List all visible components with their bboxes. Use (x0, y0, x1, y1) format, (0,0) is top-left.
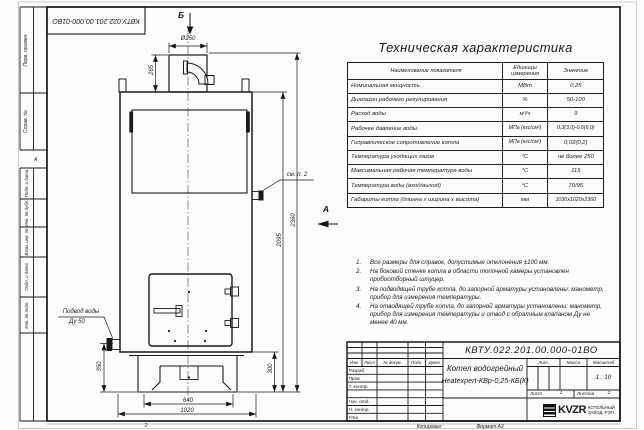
spec-cell: Максимальная рабочая температура воды (348, 165, 503, 179)
spec-cell: Расход воды (348, 108, 503, 122)
note-number: 4. (356, 303, 370, 328)
note-number: 1. (356, 259, 370, 267)
dim-chimney-diameter: Ø250 (166, 35, 210, 44)
spec-cell: °С (503, 151, 548, 165)
spec-cell: °С (503, 165, 548, 179)
note-text: На подводящей трубе котла, до запорной а… (370, 286, 608, 302)
note-text: На боковой стенке котла в области топочн… (370, 268, 608, 284)
note-item: 4. На отводящей трубе котла, до запорной… (356, 303, 608, 328)
boiler-outline (107, 30, 264, 400)
lit-label: Лит. (527, 360, 560, 365)
spec-cell: МПа (кгс/см²) (503, 137, 548, 151)
scale-value: 1 : 10 (587, 368, 620, 388)
kvzr-logo-text: KVZR (558, 404, 586, 416)
sheets-label: Листов (577, 391, 603, 396)
see-note-callout: см. п. 2 (277, 171, 317, 180)
water-inlet-dn-label: Ду 50 (57, 318, 97, 327)
spec-header-name: Наименование показателя (348, 63, 503, 80)
drawing-sheet: КВТУ.022.201.00.000-01ВО Перв. примен. С… (0, 0, 644, 430)
note-item: 1. Все размеры для справок, допустимые о… (356, 259, 608, 267)
role-nach-otd: Нач. отд. (349, 399, 377, 404)
rev-header-dokum: № докум. (377, 360, 408, 365)
note-number: 3. (356, 286, 370, 302)
spec-cell: мм (503, 194, 548, 208)
spec-cell: Рабочее давление воды (348, 122, 503, 136)
title-block-doc-number: КВТУ.022.201.00.000-01ВО (443, 344, 620, 358)
rev-header-list: Лист (362, 360, 377, 365)
margin-label-sprav-no: Справ. № (20, 93, 34, 150)
dim-total-width: 1020 (165, 407, 209, 416)
kvzr-logo-icon (543, 404, 556, 417)
spec-header-value: Значение (548, 63, 604, 80)
dim-inlet-height: 350 (95, 351, 105, 382)
note-item: 3. На подводящей трубе котла, до запорно… (356, 286, 608, 302)
mass-label: Масса (560, 360, 587, 365)
view-b-label: Б (175, 11, 187, 20)
notes-list: 1. Все размеры для справок, допустимые о… (356, 259, 608, 329)
spec-cell: м³/ч (503, 108, 548, 122)
spec-cell: не более 250 (548, 151, 604, 165)
spec-cell: МВт (503, 80, 548, 94)
dim-total-height: 2360 (289, 203, 299, 237)
spec-cell: 0,3(3,0)-0,6(6,0) (548, 122, 604, 136)
margin-label-perv-primen: Перв. примен. (20, 7, 34, 93)
note-text: На отводящей трубе котла, до запорной ар… (370, 303, 608, 328)
water-inlet-label: Подвод воды (57, 308, 105, 317)
spec-cell: Гидравлическое сопротивление котла (348, 137, 503, 151)
scale-label: Масштаб (587, 360, 620, 365)
spec-cell: Температура уходящих газов (348, 151, 503, 165)
spec-cell: МПа (кгс/см²) (503, 122, 548, 136)
company-name-line2: ЗАВОД, РЭП (588, 410, 615, 415)
spec-cell: °С (503, 179, 548, 193)
dim-base-height: 300 (266, 354, 276, 383)
spec-cell: 1030х1020х2360 (548, 194, 604, 208)
spec-table: Наименование показателя Единицы измерени… (347, 62, 604, 208)
spec-cell: Температура воды (вход/выход) (348, 179, 503, 193)
spec-cell: 0,02(0,2) (548, 137, 604, 151)
role-razrab: Разраб. (349, 368, 377, 373)
format-label: Формат А3 (468, 424, 512, 430)
role-utv: Утв. (349, 415, 377, 420)
margin-label-podp-data-1: Подп. и дата (20, 168, 34, 199)
note-text: Все размеры для справок, допустимые откл… (370, 259, 608, 267)
copied-label: Копировал (400, 424, 458, 430)
spec-cell: % (503, 94, 548, 108)
spec-cell: 9 (548, 108, 604, 122)
company-block: KVZR КОТЕЛЬНЫЙ ЗАВОД, РЭП (543, 400, 619, 420)
margin-label-inv-podl: Инв. № подл. (20, 297, 34, 333)
sheet-value: 1 (552, 391, 570, 396)
dim-body-height: 2095 (275, 223, 285, 257)
spec-cell: Номинальная мощность (348, 80, 503, 94)
view-a-label: А (319, 205, 333, 214)
role-t-kontr: Т. контр. (349, 384, 377, 389)
margin-label-inv-dubl: Инв. № дубл. (20, 199, 34, 227)
dim-chimney-height: 265 (147, 55, 157, 85)
spec-cell: 70/95 (548, 179, 604, 193)
fold-mark: 2 (140, 423, 152, 429)
role-prov: Пров. (349, 376, 377, 381)
note-number: 2. (356, 268, 370, 284)
spec-cell: 0,25 (548, 80, 604, 94)
company-name: КОТЕЛЬНЫЙ ЗАВОД, РЭП (588, 405, 615, 416)
note-item: 2. На боковой стенке котла в области топ… (356, 268, 608, 284)
product-name-line2: Heatexpert-КВр-0,25-КБ(К) (441, 376, 529, 385)
rev-header-podp: Подп. (408, 360, 426, 365)
spec-cell: 50-100 (548, 94, 604, 108)
spec-cell: 115 (548, 165, 604, 179)
zone-mark-left: А (34, 157, 37, 163)
margin-label-podp-data-2: Подп. и дата (20, 257, 34, 297)
spec-cell: Диапазон рабочего регулирования (348, 94, 503, 108)
role-n-kontr: Н. контр. (349, 407, 377, 412)
spec-cell: Габариты котла (длинна х ширина х высота… (348, 194, 503, 208)
rev-header-data: Дата (426, 360, 444, 365)
dim-base-width: 640 (166, 397, 210, 406)
margin-label-vzam-inv: Взам. инв. № (20, 227, 34, 257)
rev-header-izm: Изм. (347, 360, 362, 365)
product-name-line1: Котел водогрейный (443, 364, 527, 373)
spec-table-title: Техническая характеристика (347, 40, 604, 55)
doc-number-stamp: КВТУ.022.201.00.000-01ВО (48, 9, 144, 32)
spec-header-units: Единицы измерения (503, 63, 548, 80)
sheets-value: 2 (601, 391, 617, 396)
sheet-label: Лист (530, 391, 550, 396)
